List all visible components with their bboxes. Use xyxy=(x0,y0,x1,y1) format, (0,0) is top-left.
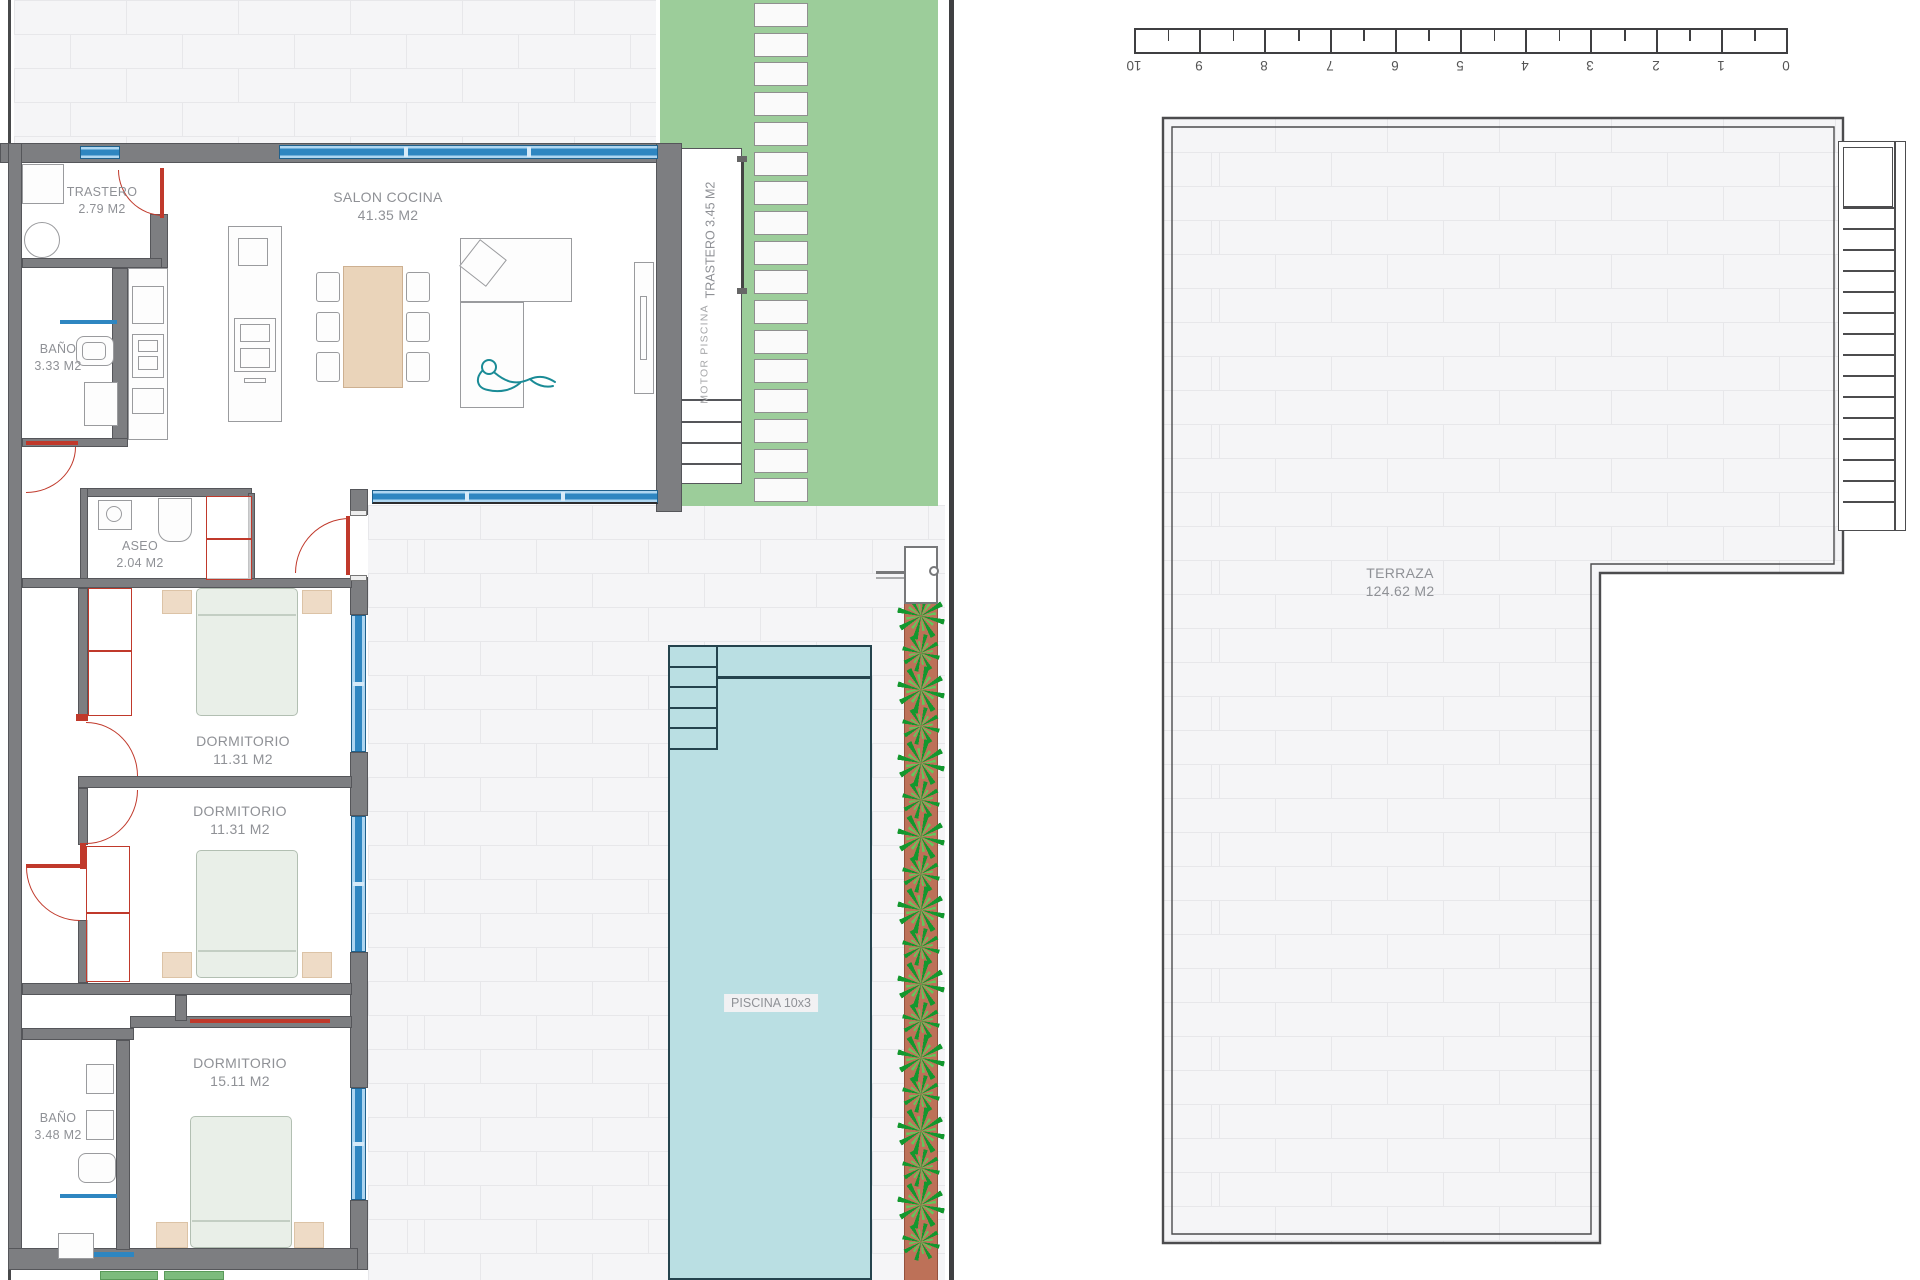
ruler-minor-tick xyxy=(1428,30,1430,41)
ruler-minor-tick xyxy=(1689,30,1691,41)
wall-bano2-top xyxy=(22,1028,134,1040)
ruler-number: 1 xyxy=(1717,58,1725,73)
stepping-stone xyxy=(754,270,808,294)
wall-wing-right-c xyxy=(350,952,368,1088)
door-arc-bano1 xyxy=(26,447,76,493)
palm-plant-icon xyxy=(902,1223,940,1261)
room-label-dorm1: DORMITORIO 11.31 M2 xyxy=(196,732,290,768)
ruler-minor-tick xyxy=(1298,30,1300,41)
room-label-dorm2: DORMITORIO 11.31 M2 xyxy=(193,802,287,838)
room-label-terraza: TERRAZA 124.62 M2 xyxy=(1366,564,1435,600)
stair-tread-line xyxy=(1843,207,1894,209)
sink-bano1 xyxy=(84,382,118,426)
cabinet xyxy=(132,388,164,414)
room-label-trastero: TRASTERO 2.79 M2 xyxy=(67,184,137,218)
room-area: 15.11 M2 xyxy=(193,1072,287,1090)
door-leaf-trastero xyxy=(160,168,164,218)
room-name: TRASTERO xyxy=(67,184,137,201)
boiler-icon xyxy=(24,222,60,258)
stair-tread-line xyxy=(1843,417,1894,419)
hedge xyxy=(100,1271,158,1280)
room-label-bano2: BAÑO 3.48 M2 xyxy=(34,1110,81,1144)
patio-paving-top-left xyxy=(14,0,656,143)
stair-rail-line xyxy=(1894,141,1896,531)
stair-tread-line xyxy=(1843,459,1894,461)
room-label-trastero-ext: TRASTERO 3.45 M2 xyxy=(703,182,720,299)
island-handle xyxy=(244,378,266,383)
stair-tread-line xyxy=(1843,291,1894,293)
dining-chair xyxy=(406,272,430,302)
step-line xyxy=(679,463,741,465)
stair-tread-line xyxy=(1843,249,1894,251)
door-leaf-bano1 xyxy=(26,441,78,445)
ruler-cell xyxy=(1462,30,1527,52)
ruler-number: 4 xyxy=(1521,58,1529,73)
stair-tread-line xyxy=(1843,501,1894,503)
wall-aseo-left xyxy=(80,488,88,588)
stepping-stone xyxy=(754,330,808,354)
room-area: 41.35 M2 xyxy=(333,206,442,224)
ruler-number: 3 xyxy=(1587,58,1595,73)
wall-dorm1-top xyxy=(22,578,352,588)
wall-trastero-bottom xyxy=(22,258,162,268)
room-name: BAÑO xyxy=(34,341,81,358)
door-arc-dorm2 xyxy=(86,790,138,844)
stepping-stone xyxy=(754,211,808,235)
burner-b xyxy=(240,348,270,368)
sliding-door-dorm3 xyxy=(190,1019,330,1023)
palm-plant-icon xyxy=(897,1107,945,1155)
bed-dorm2 xyxy=(196,850,298,978)
window-mullion xyxy=(465,492,469,501)
ruler-cell xyxy=(1332,30,1397,52)
room-name: DORMITORIO xyxy=(193,802,287,820)
stepping-stone xyxy=(754,181,808,205)
room-label-aseo: ASEO 2.04 M2 xyxy=(116,538,163,572)
nightstand xyxy=(294,1222,324,1248)
door-jamb-bottom xyxy=(737,288,747,294)
pool-step-line xyxy=(668,666,718,668)
door-jamb-top xyxy=(737,156,747,162)
wardrobe-dorm1 xyxy=(88,588,132,716)
palm-plant-icon xyxy=(897,813,945,861)
ruler-cell xyxy=(1201,30,1266,52)
window-salon-top xyxy=(279,145,658,159)
dining-chair xyxy=(316,352,340,382)
ruler-number: 8 xyxy=(1261,58,1269,73)
bed-sheet-line xyxy=(198,614,296,616)
ruler-minor-tick xyxy=(1754,30,1756,41)
bed-dorm1 xyxy=(196,588,298,716)
nightstand xyxy=(302,590,332,614)
burner-a xyxy=(240,324,270,342)
stair-tread-line xyxy=(1843,270,1894,272)
ruler-number: 0 xyxy=(1782,58,1790,73)
palm-plant-icon xyxy=(897,960,945,1008)
window-mullion xyxy=(404,147,408,157)
stair-tread-line xyxy=(1843,354,1894,356)
room-area: 124.62 M2 xyxy=(1366,582,1435,600)
nightstand xyxy=(162,952,192,978)
ruler-number: 7 xyxy=(1326,58,1334,73)
ruler-minor-tick xyxy=(1168,30,1170,41)
bed-dorm3 xyxy=(190,1116,292,1248)
nightstand xyxy=(156,1222,188,1248)
nightstand xyxy=(162,590,192,614)
pool-step-line xyxy=(668,686,718,688)
motor-piscina-label: MOTOR PISCINA xyxy=(697,304,714,403)
wardrobe-dorm2 xyxy=(86,846,130,982)
property-line-right xyxy=(949,0,954,1280)
ruler-minor-tick xyxy=(1233,30,1235,41)
door-jamb xyxy=(350,510,367,516)
dining-chair xyxy=(316,272,340,302)
wardrobe-divider xyxy=(88,650,132,652)
ruler-cell xyxy=(1723,30,1786,52)
room-area: 2.04 M2 xyxy=(116,555,163,572)
palm-plant-icon xyxy=(897,739,945,787)
room-name: TRASTERO xyxy=(704,230,718,298)
door-arc-hall xyxy=(26,867,80,921)
pool-label: PISCINA 10x3 xyxy=(724,994,818,1012)
stair-tread-line xyxy=(1843,375,1894,377)
room-area: 11.31 M2 xyxy=(196,750,290,768)
island-sink xyxy=(238,238,268,266)
toilet-bano2 xyxy=(78,1153,116,1183)
window-mullion xyxy=(561,492,565,501)
floor-plan-canvas: PISCINA 10x3 TRASTERO 3.45 M2 MOTOR PISC… xyxy=(0,0,1920,1280)
wall-bano2-right xyxy=(116,1040,130,1250)
stair-tread-line xyxy=(1843,333,1894,335)
room-name: TERRAZA xyxy=(1366,564,1435,582)
door-jamb-red xyxy=(76,714,88,721)
stair-tread-line xyxy=(1843,228,1894,230)
pool-step-line xyxy=(668,727,718,729)
stepping-stone xyxy=(754,389,808,413)
ruler-cell xyxy=(1266,30,1331,52)
room-area: 11.31 M2 xyxy=(193,820,287,838)
hedge xyxy=(164,1271,224,1280)
ruler-minor-tick xyxy=(1494,30,1496,41)
window-mullion xyxy=(353,682,364,686)
step-line xyxy=(679,421,741,423)
pool-step-line xyxy=(668,748,718,750)
stepping-stone xyxy=(754,62,808,86)
stair-tread-line xyxy=(1843,396,1894,398)
palm-plant-icon xyxy=(897,1034,945,1082)
dining-chair xyxy=(406,312,430,342)
wardrobe-divider xyxy=(86,912,130,914)
bed-sheet-line xyxy=(198,950,296,952)
sink-bano2-b xyxy=(86,1110,114,1140)
room-area: 3.48 M2 xyxy=(34,1127,81,1144)
dining-table xyxy=(343,266,403,388)
ruler-number: 2 xyxy=(1652,58,1660,73)
window-trastero xyxy=(80,146,120,159)
ruler-cell xyxy=(1527,30,1592,52)
person-figure xyxy=(462,350,562,402)
wall-left xyxy=(8,143,22,1270)
stair-tread-line xyxy=(1843,480,1894,482)
wall-salon-right xyxy=(656,143,682,512)
door-leaf-deck xyxy=(346,516,350,575)
stepping-stone xyxy=(754,359,808,383)
ruler-number: 9 xyxy=(1195,58,1203,73)
stepping-stone xyxy=(754,300,808,324)
ruler-cell xyxy=(1658,30,1723,52)
room-label-salon: SALON COCINA 41.35 M2 xyxy=(333,188,442,224)
stepping-stone xyxy=(754,122,808,146)
nightstand xyxy=(302,952,332,978)
ruler-number: 5 xyxy=(1456,58,1464,73)
ruler-minor-tick xyxy=(1559,30,1561,41)
oven-bottom xyxy=(138,356,158,370)
room-name: BAÑO xyxy=(34,1110,81,1127)
room-area: 3.33 M2 xyxy=(34,358,81,375)
motor-piscina-text: MOTOR PISCINA xyxy=(699,304,711,403)
window-mullion xyxy=(527,147,531,157)
dining-chair xyxy=(316,312,340,342)
ruler-number: 10 xyxy=(1126,58,1141,73)
stair-tread-line xyxy=(1843,438,1894,440)
toilet-aseo xyxy=(158,498,192,542)
pool xyxy=(668,645,872,1280)
fridge xyxy=(132,286,164,324)
door-arc-deck xyxy=(295,518,350,573)
window-salon-bottom xyxy=(372,490,658,504)
wall-stub xyxy=(175,995,187,1021)
ruler-cell xyxy=(1136,30,1201,52)
wall-wing-right-b xyxy=(350,752,368,816)
toilet-bowl xyxy=(82,342,106,360)
palm-plant-icon xyxy=(897,1181,945,1229)
room-label-bano1: BAÑO 3.33 M2 xyxy=(34,341,81,375)
washer-drum xyxy=(106,506,122,522)
door-leaf-hall xyxy=(26,864,80,868)
stepping-stone xyxy=(754,33,808,57)
pool-step-line xyxy=(668,707,718,709)
oven-top xyxy=(138,340,158,352)
stepping-stone xyxy=(754,478,808,502)
stepping-stone xyxy=(754,241,808,265)
gate-hinge-icon xyxy=(929,566,939,576)
bed-sheet-line xyxy=(192,1220,290,1222)
pool-step-edge xyxy=(716,645,718,750)
wall-wing-right-a xyxy=(350,577,368,615)
stepping-stone xyxy=(754,92,808,116)
room-area: 3.45 M2 xyxy=(704,182,718,227)
room-name: DORMITORIO xyxy=(193,1054,287,1072)
dining-chair xyxy=(406,352,430,382)
window-mullion xyxy=(353,882,364,886)
door-arc-dorm1 xyxy=(86,722,138,776)
palm-plant-icon xyxy=(897,666,945,714)
wardrobe-divider xyxy=(206,538,252,540)
storage-shelf xyxy=(22,164,64,204)
room-label-dorm3: DORMITORIO 15.11 M2 xyxy=(193,1054,287,1090)
room-name: ASEO xyxy=(116,538,163,555)
wall-dorm1-bottom xyxy=(78,776,352,788)
stair-tread-line xyxy=(1843,312,1894,314)
ruler-cell xyxy=(1397,30,1462,52)
tv-screen xyxy=(640,296,647,360)
vent-window-bottom xyxy=(90,1252,134,1257)
wall-corridor-1 xyxy=(78,588,88,718)
terrace-border xyxy=(1160,115,1850,1250)
stepping-stone xyxy=(754,449,808,473)
ruler-minor-tick xyxy=(1363,30,1365,41)
room-name: DORMITORIO xyxy=(196,732,290,750)
room-area: 2.79 M2 xyxy=(67,201,137,218)
pool-label-text: PISCINA 10x3 xyxy=(731,996,811,1010)
door-jamb xyxy=(350,575,367,581)
window-mullion xyxy=(353,1142,364,1146)
shower-screen-bano1 xyxy=(60,320,117,324)
ruler-minor-tick xyxy=(1624,30,1626,41)
stepping-stone xyxy=(754,152,808,176)
ruler-number: 6 xyxy=(1391,58,1399,73)
room-name: SALON COCINA xyxy=(333,188,442,206)
exterior-storage-door xyxy=(741,162,744,288)
pool-ledge-line xyxy=(718,676,872,679)
scale-ruler xyxy=(1134,28,1788,54)
shower-screen-bano2 xyxy=(60,1194,117,1198)
step-line xyxy=(679,442,741,444)
sink-bano2-a xyxy=(86,1064,114,1094)
wall-dorm2-bottom xyxy=(22,983,352,995)
ruler-cell xyxy=(1592,30,1657,52)
stepping-stone xyxy=(754,419,808,443)
stair-landing xyxy=(1843,147,1893,207)
wall-niche xyxy=(58,1233,94,1259)
stepping-stone xyxy=(754,3,808,27)
